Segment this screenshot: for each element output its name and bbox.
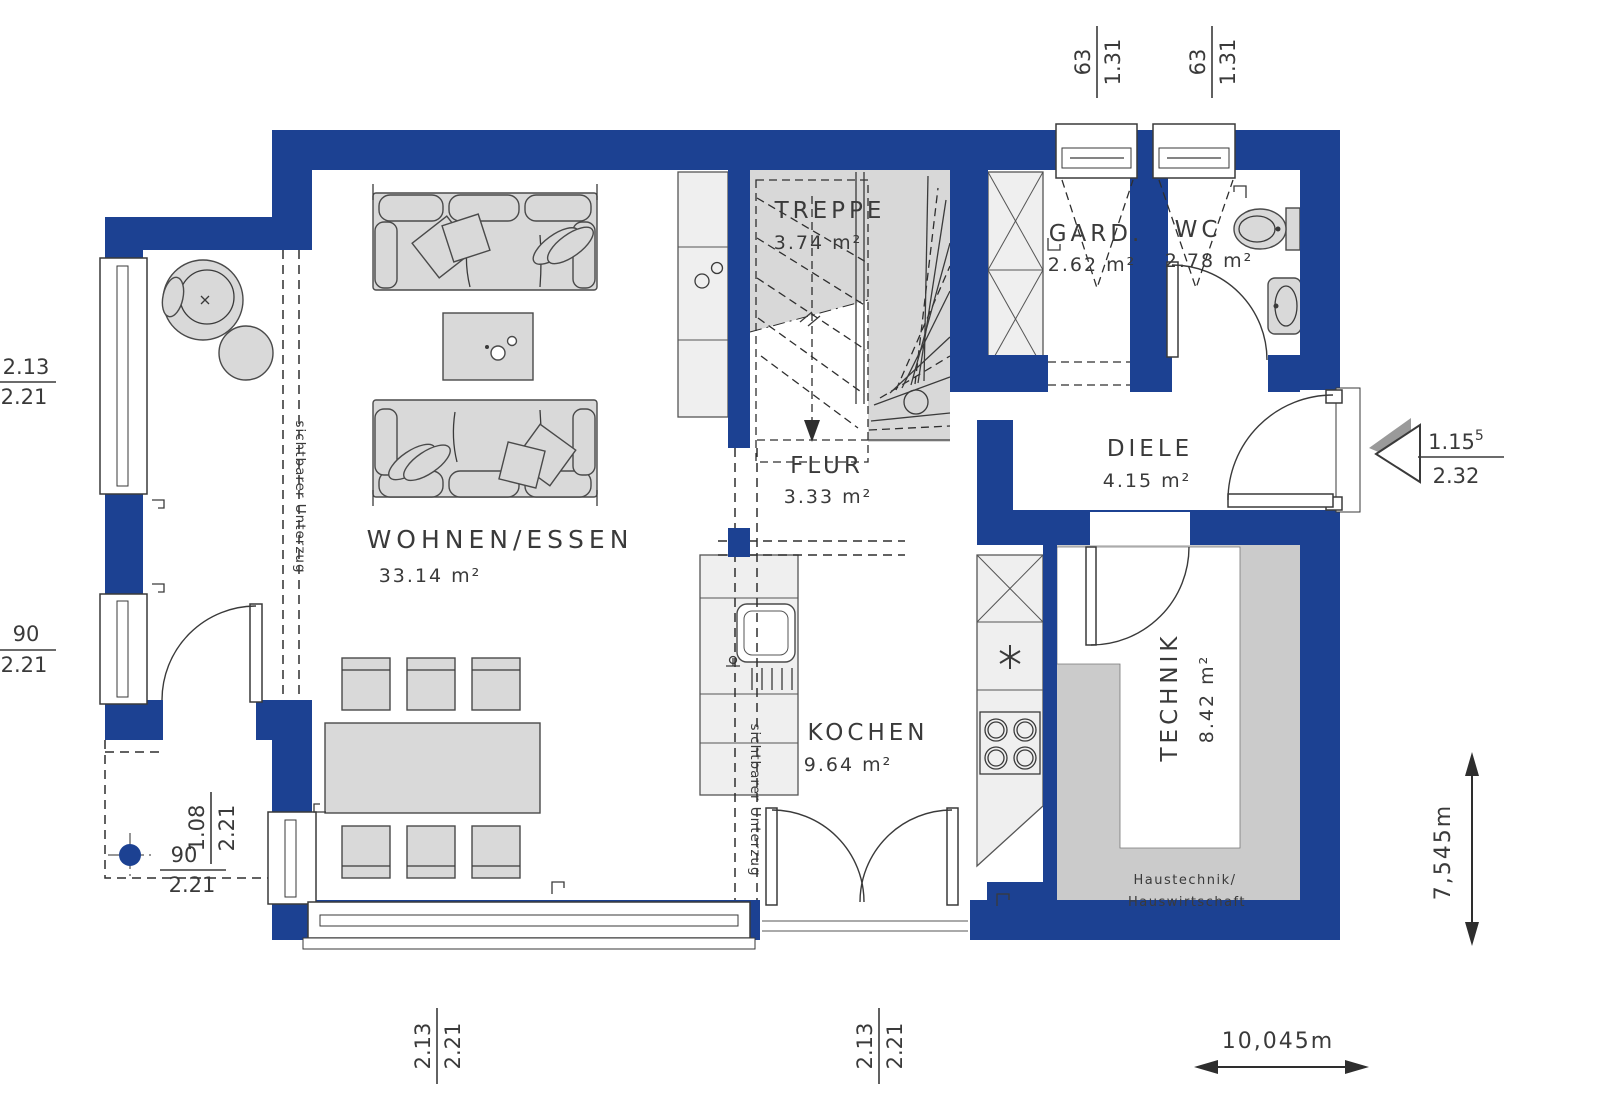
wardrobe-icon xyxy=(988,172,1043,368)
room-area-diele: 4.15 m² xyxy=(1103,470,1191,492)
svg-text:1.31: 1.31 xyxy=(1216,39,1240,86)
svg-text:2.32: 2.32 xyxy=(1433,464,1480,488)
svg-text:2.21: 2.21 xyxy=(441,1023,465,1070)
room-label-wc: WC xyxy=(1175,217,1222,243)
window-left-lower xyxy=(268,812,316,904)
technik-note-1: Haustechnik/ xyxy=(1134,873,1237,888)
wall-stairs-left xyxy=(728,170,750,448)
wall-flur-stub xyxy=(728,528,750,557)
wall-diele-top xyxy=(950,355,1340,392)
dining-chairs-bottom xyxy=(342,826,520,878)
toilet-icon xyxy=(1234,208,1300,250)
doorway-gard xyxy=(1048,355,1130,392)
sofa-top-icon xyxy=(373,184,599,290)
wall-flur-diele xyxy=(977,420,1013,545)
svg-text:7,545m: 7,545m xyxy=(1431,804,1456,900)
room-area-wc: 2.78 m² xyxy=(1165,250,1253,272)
room-area-wohnen: 33.14 m² xyxy=(379,565,482,587)
svg-text:90: 90 xyxy=(13,622,40,646)
beam-label-living: sichtbarer Unterzug xyxy=(292,420,308,573)
svg-text:2.21: 2.21 xyxy=(215,805,239,852)
window-bay-upper xyxy=(100,258,147,494)
room-label-gard: GARD. xyxy=(1049,221,1144,247)
svg-text:2.13: 2.13 xyxy=(853,1023,877,1070)
wall-kochen-technik xyxy=(1043,545,1057,902)
beam-label-kitchen: sichtbarer Unterzug xyxy=(747,723,763,876)
svg-text:2.13: 2.13 xyxy=(411,1023,435,1070)
svg-text:90: 90 xyxy=(171,843,198,867)
wall-stub-topleft xyxy=(272,170,312,217)
shelf-icon xyxy=(678,172,728,417)
svg-text:63: 63 xyxy=(1071,49,1095,76)
svg-text:2.13: 2.13 xyxy=(3,355,50,379)
room-area-kochen: 9.64 m² xyxy=(804,754,892,776)
room-area-treppe: 3.74 m² xyxy=(774,232,862,254)
wall-bay-top xyxy=(105,217,312,250)
room-label-technik: TECHNIK xyxy=(1157,632,1183,762)
sink-icon xyxy=(1268,278,1301,334)
side-table-icon xyxy=(219,326,273,380)
floor-plan-svg: WOHNEN/ESSEN 33.14 m² TREPPE 3.74 m² GAR… xyxy=(0,0,1600,1107)
room-label-diele: DIELE xyxy=(1107,436,1193,462)
room-label-wohnen: WOHNEN/ESSEN xyxy=(367,525,634,554)
svg-text:63: 63 xyxy=(1186,49,1210,76)
wall-kitchen-corner xyxy=(987,882,1043,902)
dining-set-icon xyxy=(325,658,540,878)
room-area-gard: 2.62 m² xyxy=(1048,254,1136,276)
room-area-flur: 3.33 m² xyxy=(784,486,872,508)
room-label-kochen: KOCHEN xyxy=(807,720,928,746)
svg-text:1.31: 1.31 xyxy=(1101,39,1125,86)
dining-table-icon xyxy=(325,723,540,813)
svg-text:2.21: 2.21 xyxy=(1,653,48,677)
svg-text:2.21: 2.21 xyxy=(169,873,216,897)
svg-text:2.21: 2.21 xyxy=(883,1023,907,1070)
room-label-flur: FLUR xyxy=(790,453,864,479)
window-wc xyxy=(1153,124,1235,178)
sofa-bottom-icon xyxy=(373,400,597,506)
technik-note-2: Hauswirtschaft xyxy=(1128,895,1246,910)
window-bay-lower xyxy=(100,594,147,704)
window-living-bottom xyxy=(303,902,755,949)
window-gard xyxy=(1056,124,1137,178)
dining-chairs-top xyxy=(342,658,520,710)
room-label-treppe: TREPPE xyxy=(774,198,886,224)
svg-text:10,045m: 10,045m xyxy=(1222,1029,1334,1054)
floor-plan-page: WOHNEN/ESSEN 33.14 m² TREPPE 3.74 m² GAR… xyxy=(0,0,1600,1107)
coffee-table-icon xyxy=(443,313,533,380)
svg-text:2.21: 2.21 xyxy=(1,385,48,409)
room-area-technik: 8.42 m² xyxy=(1196,655,1218,743)
